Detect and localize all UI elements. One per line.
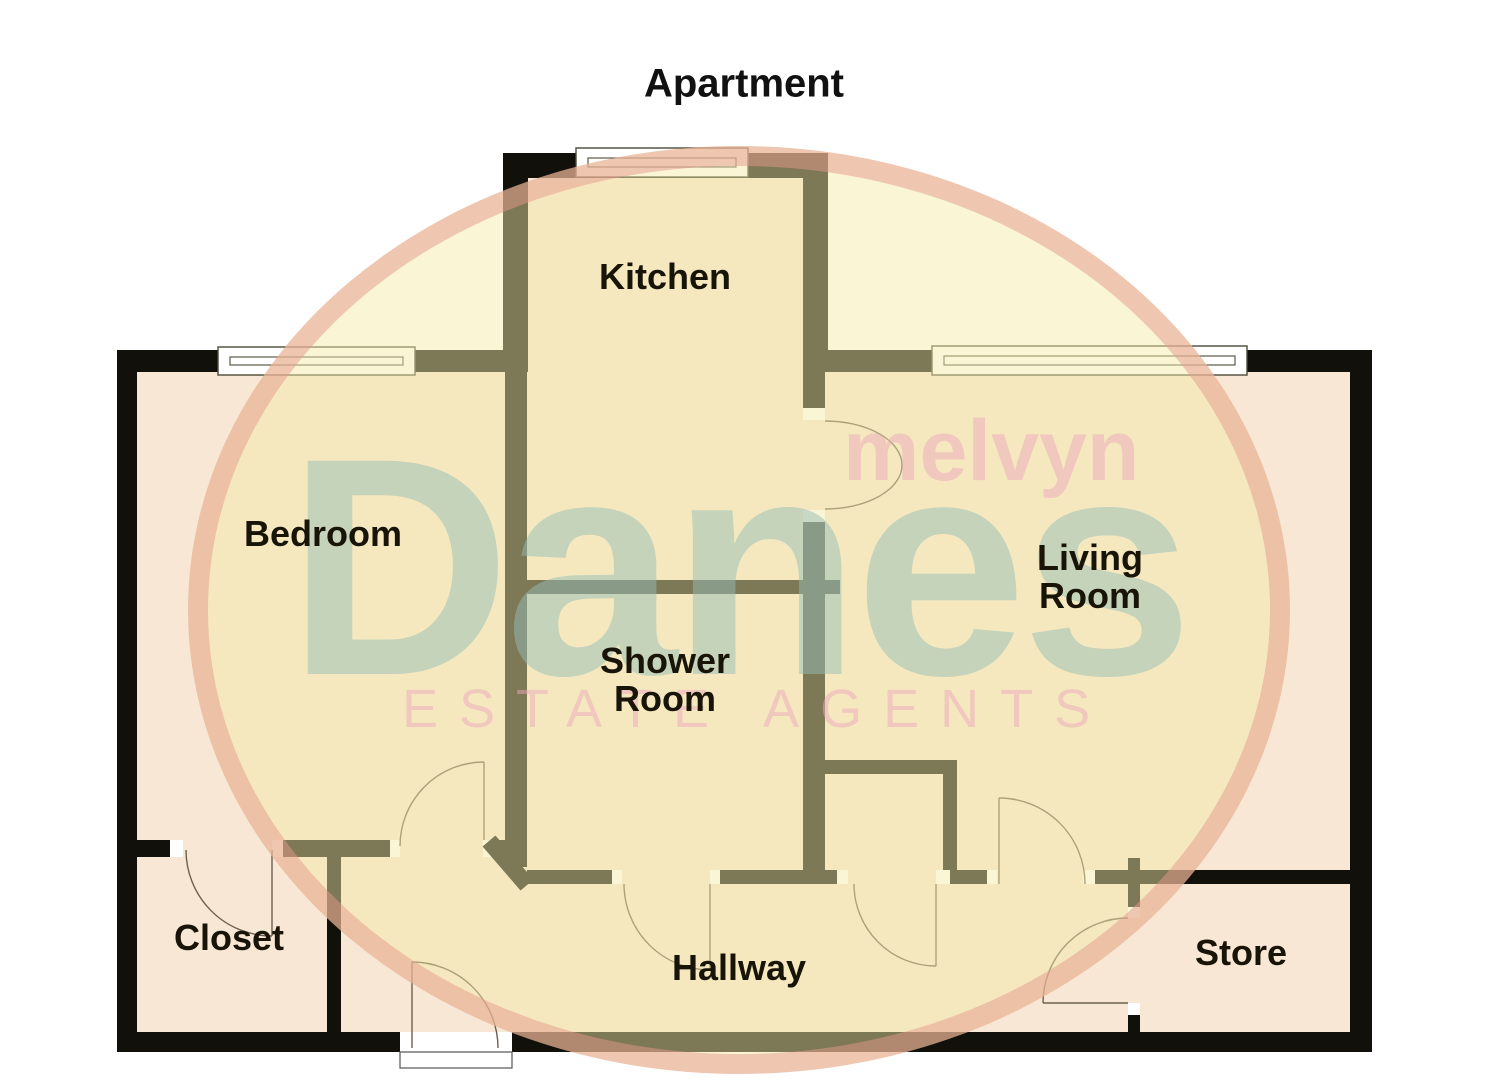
room-fills: [137, 178, 1350, 1032]
plan-title: Apartment: [644, 62, 844, 107]
room-label-store: Store: [1195, 934, 1287, 972]
room-label-hallway: Hallway: [672, 949, 806, 987]
room-label-shower-room: Shower Room: [590, 642, 740, 718]
room-label-bedroom: Bedroom: [244, 515, 402, 553]
floor-plan-page: melvyn Danes ESTATE AGENTS Apartment Kit…: [0, 0, 1485, 1080]
room-label-closet: Closet: [174, 919, 284, 957]
room-label-kitchen: Kitchen: [599, 258, 731, 296]
room-label-living-room: Living Room: [1025, 539, 1155, 615]
